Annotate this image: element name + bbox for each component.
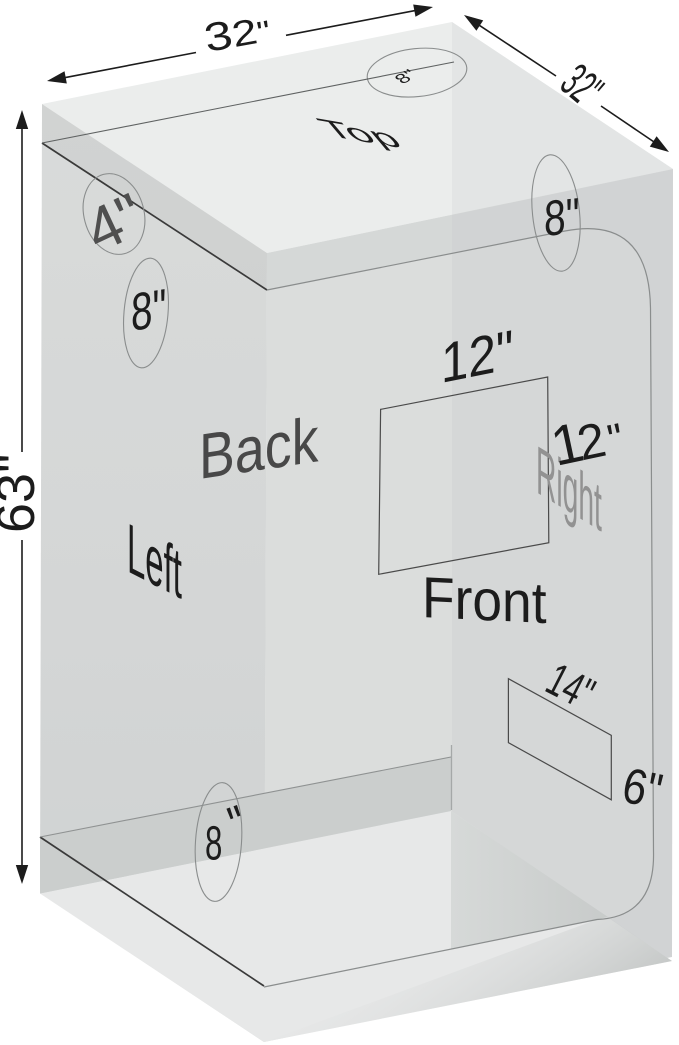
svg-text:8": 8" [544, 187, 580, 247]
svg-text:8: 8 [205, 816, 222, 871]
svg-text:Front: Front [422, 565, 547, 636]
svg-text:63": 63" [0, 454, 46, 533]
svg-text:8": 8" [131, 277, 166, 342]
